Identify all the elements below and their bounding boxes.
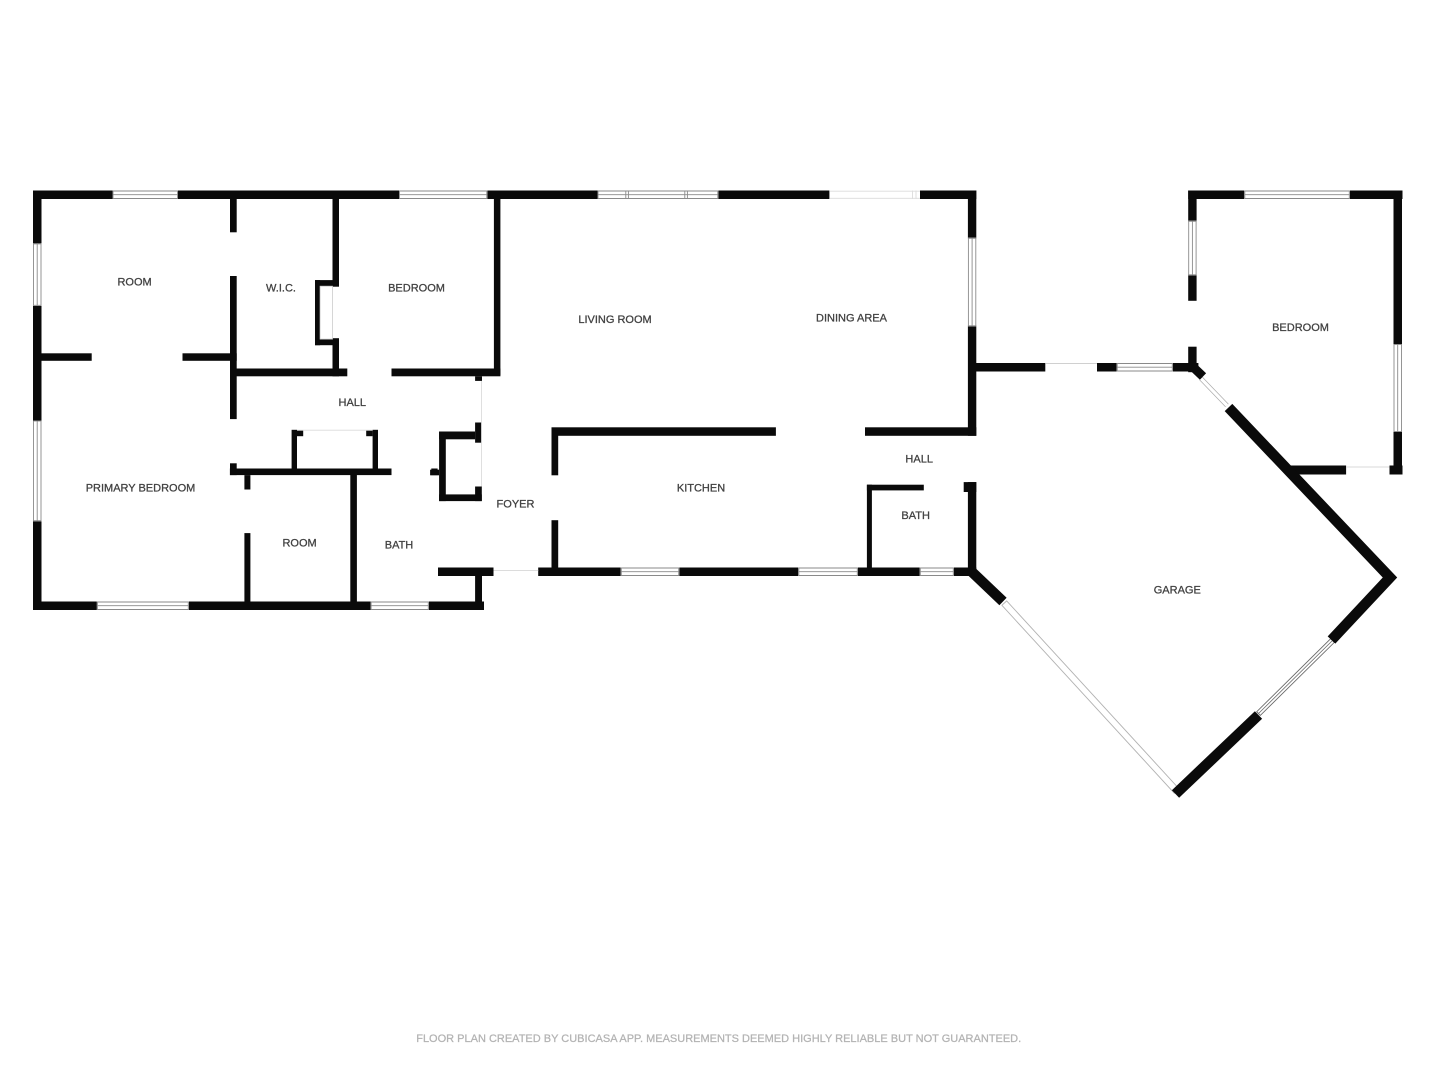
svg-text:ROOM: ROOM xyxy=(282,538,316,550)
svg-text:BATH: BATH xyxy=(385,540,414,552)
svg-text:DINING AREA: DINING AREA xyxy=(816,313,888,325)
svg-text:FLOOR PLAN CREATED BY CUBICASA: FLOOR PLAN CREATED BY CUBICASA APP. MEAS… xyxy=(416,1033,1021,1045)
svg-text:LIVING ROOM: LIVING ROOM xyxy=(578,314,651,326)
svg-text:FOYER: FOYER xyxy=(497,499,535,511)
svg-text:HALL: HALL xyxy=(339,397,367,409)
svg-text:HALL: HALL xyxy=(905,453,933,465)
svg-text:ROOM: ROOM xyxy=(117,277,151,289)
svg-text:BEDROOM: BEDROOM xyxy=(1272,322,1329,334)
svg-text:PRIMARY BEDROOM: PRIMARY BEDROOM xyxy=(86,483,196,495)
svg-text:W.I.C.: W.I.C. xyxy=(266,283,296,295)
svg-text:GARAGE: GARAGE xyxy=(1154,585,1201,597)
svg-text:KITCHEN: KITCHEN xyxy=(677,483,725,495)
svg-text:BEDROOM: BEDROOM xyxy=(388,283,445,295)
svg-text:BATH: BATH xyxy=(901,510,930,522)
